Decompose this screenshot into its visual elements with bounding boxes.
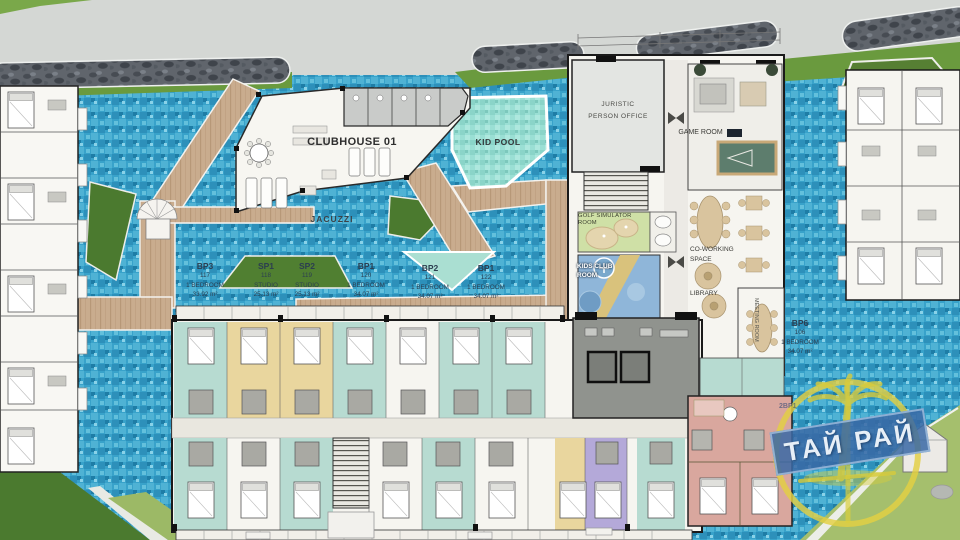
entry-platform xyxy=(328,512,374,538)
bottom-row-units xyxy=(174,438,685,530)
clubhouse-label: CLUBHOUSE 01 xyxy=(290,136,414,149)
jacuzzi-label: JACUZZI xyxy=(299,215,365,225)
floor-plan-canvas: CLUBHOUSE 01 KID POOL JACUZZI JURISTIC P… xyxy=(0,0,960,540)
corridor xyxy=(172,418,702,438)
elevator-1 xyxy=(588,352,616,382)
stairs-block xyxy=(584,172,648,210)
unit-label-bp1-122: BP1 122 1 BEDROOM 34.07 m² xyxy=(454,263,518,302)
unit-label-bp6: BP6 106 1 BEDROOM 34.07 m² xyxy=(768,318,832,357)
kids-club-label: KIDS CLUB ROOM xyxy=(577,262,631,280)
co-working-label: CO-WORKING SPACE xyxy=(690,245,754,265)
golf-simulator-label: GOLF SIMULATOR ROOM xyxy=(578,213,652,226)
partial-unit-label: 2BP1 xyxy=(779,403,797,411)
unit-label-bp3: BP3 117 1 BEDROOM 33.92 m² xyxy=(173,261,237,300)
library-label: LIBRARY xyxy=(690,290,738,297)
unit-label-bp2: BP2 121 1 BEDROOM 34.07 m² xyxy=(398,263,462,302)
left-building xyxy=(0,86,87,472)
main-stairs xyxy=(333,438,369,508)
round-table-icon xyxy=(250,144,268,162)
top-row-units xyxy=(174,322,545,418)
unit-label-bp1-120: BP1 120 1 BEDROOM 34.07 m² xyxy=(334,261,398,300)
main-building xyxy=(172,306,792,540)
right-edge-building xyxy=(838,70,960,300)
game-room-label: GAME ROOM xyxy=(662,129,758,137)
kid-pool-label: KID POOL xyxy=(460,138,536,148)
juristic-office-label: JURISTIC PERSON OFFICE xyxy=(574,99,662,123)
elevator-core xyxy=(573,312,699,418)
elevator-2 xyxy=(621,352,649,382)
game-room-legend-swatch xyxy=(727,129,742,137)
meeting-room-label: MEETING ROOM xyxy=(753,298,759,368)
unit-label-sp2: SP2 119 STUDIO 25.13 m² xyxy=(275,261,339,300)
